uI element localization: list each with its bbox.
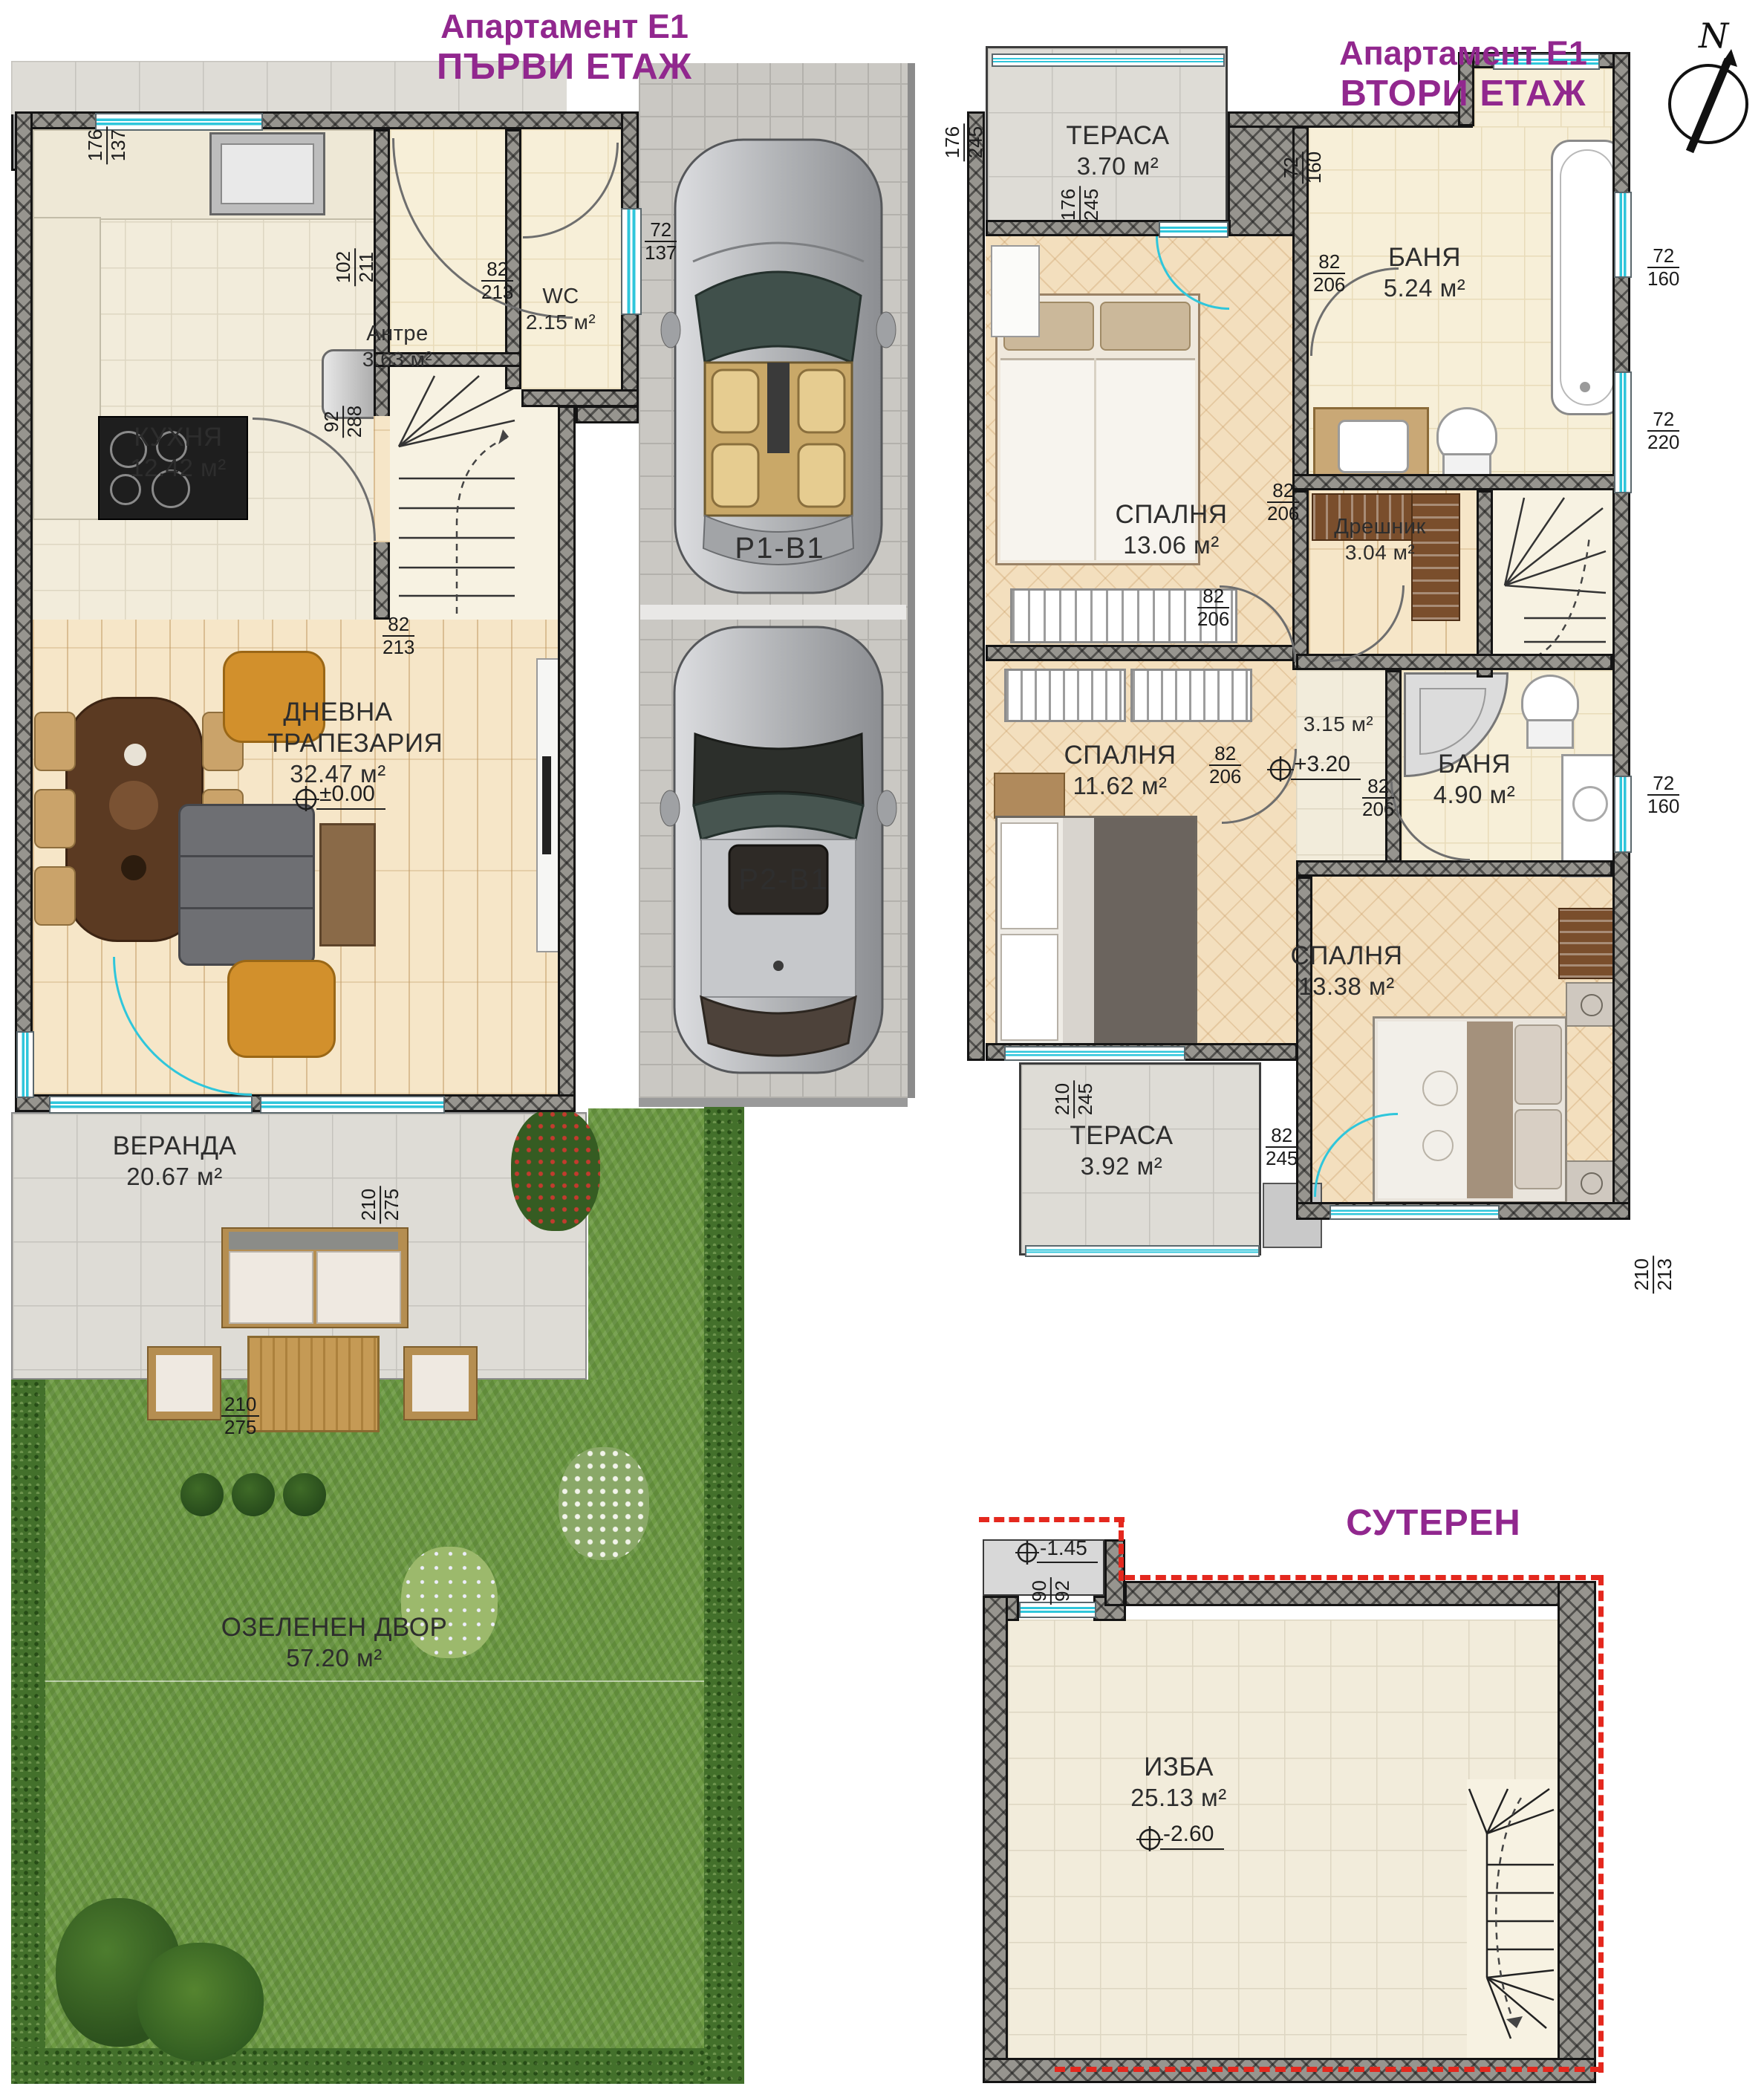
window	[1614, 371, 1632, 493]
window	[1025, 1245, 1260, 1257]
room-label-living: ДНЕВНА ТРАПЕЗАРИЯ 32.47 м²	[267, 697, 409, 789]
dimension: 176245	[1058, 186, 1101, 224]
room-label-terrace1: ТЕРАСА 3.70 м²	[1055, 120, 1181, 181]
flower-bush-icon	[559, 1447, 649, 1560]
wall	[1296, 877, 1312, 1218]
dimension: 72220	[1647, 409, 1679, 452]
dimension: 92288	[321, 406, 365, 438]
second-floor-title: Апартамент E1 ВТОРИ ЕТАЖ	[1285, 34, 1641, 114]
insulation-line	[1055, 2067, 1601, 2072]
wall	[1296, 860, 1612, 877]
bush-icon	[232, 1473, 275, 1516]
nightstand-icon	[1566, 1160, 1615, 1205]
stairs-icon	[1494, 492, 1610, 670]
bush-icon	[180, 1473, 224, 1516]
room-label-cellar: ИЗБА 25.13 м²	[1104, 1752, 1253, 1813]
first-floor-title: Апартамент E1 ПЪРВИ ЕТАЖ	[319, 7, 810, 88]
dimension: 82213	[481, 259, 513, 302]
wall	[15, 111, 33, 1112]
window	[260, 1096, 445, 1114]
room-label-bedroom1: СПАЛНЯ 13.06 м²	[1108, 499, 1234, 560]
stairs-icon	[1462, 1783, 1560, 2044]
hedge	[11, 1380, 45, 2084]
tree-icon	[137, 1943, 264, 2062]
level-marker: -1.45	[1013, 1536, 1098, 1565]
dimension: 82206	[1313, 251, 1345, 295]
stairs-icon	[391, 368, 521, 618]
dimension: 72160	[1647, 773, 1679, 816]
wardrobe-icon	[1130, 669, 1252, 722]
room-label-entry: Антре 3.63 м²	[338, 321, 457, 371]
level-marker: -2.60	[1135, 1822, 1224, 1851]
parking-divider	[640, 605, 906, 620]
chair-icon	[34, 866, 76, 926]
dimension: 176137	[85, 126, 128, 164]
lawn	[588, 1108, 706, 1382]
vanity-icon	[1561, 754, 1616, 877]
dimension: 210213	[1631, 1256, 1675, 1293]
car-p1-icon	[663, 135, 894, 597]
dimension: 210275	[221, 1394, 259, 1438]
window	[1614, 192, 1632, 278]
nightstand-icon	[994, 773, 1065, 819]
room-label-veranda: ВЕРАНДА 20.67 м²	[78, 1131, 271, 1192]
basement-title: СУТЕРЕН	[1329, 1502, 1537, 1544]
sofa-icon	[178, 804, 315, 966]
wardrobe-icon	[1004, 669, 1126, 722]
room-label-corridor: 3.15 м²	[1294, 712, 1383, 737]
window	[1004, 1046, 1185, 1061]
parking-spot-p2-label: P2-B1	[687, 863, 880, 897]
chair-icon	[34, 789, 76, 848]
room-label-kitchen: КУХНЯ 12.42 м²	[115, 422, 241, 483]
toilet-icon	[1432, 407, 1497, 481]
floor-plan-sheet: Апартамент E1 ПЪРВИ ЕТАЖ	[0, 0, 1764, 2095]
room-label-terrace2: ТЕРАСА 3.92 м²	[1058, 1120, 1185, 1181]
door-opening	[374, 416, 390, 542]
svg-text:N: N	[1698, 16, 1730, 56]
window	[1159, 221, 1228, 238]
wall	[983, 1596, 1008, 2083]
room-label-bath2: БАНЯ 4.90 м²	[1415, 749, 1534, 810]
room-label-bedroom2: СПАЛНЯ 11.62 м²	[1061, 740, 1179, 801]
dimension: 82206	[1267, 480, 1299, 524]
lawn-joint	[11, 1680, 744, 1682]
wall	[576, 406, 639, 423]
window	[1329, 1205, 1500, 1220]
room-label-wc: WC 2.15 м²	[512, 284, 609, 334]
kitchen-counter-icon	[33, 217, 101, 520]
window	[621, 208, 642, 315]
wall	[558, 406, 576, 1112]
bush-icon	[283, 1473, 326, 1516]
wall	[967, 111, 985, 1061]
coffee-table-icon	[319, 823, 376, 946]
dimension: 210275	[358, 1186, 402, 1224]
wall	[1477, 490, 1493, 678]
car-p2-icon	[661, 623, 896, 1077]
insulation-line	[979, 1517, 1125, 1522]
toilet-icon	[1517, 675, 1580, 749]
insulation-line	[1125, 1575, 1601, 1580]
wall	[1558, 1581, 1596, 2083]
dimension: 82206	[1209, 743, 1241, 787]
dimension: 72137	[645, 219, 677, 263]
dimension: 176245	[942, 123, 986, 161]
room-label-yard: ОЗЕЛЕНЕН ДВОР 57.20 м²	[171, 1612, 498, 1673]
dimension: 72160	[1280, 152, 1324, 183]
window	[49, 1096, 253, 1114]
level-marker: ±0.00	[291, 782, 385, 811]
dimension: 82213	[383, 614, 414, 657]
flower-bush-icon	[511, 1108, 600, 1231]
outdoor-sofa-icon	[221, 1227, 409, 1328]
wall	[521, 389, 639, 407]
room-label-bath1: БАНЯ 5.24 м²	[1365, 242, 1484, 303]
window	[16, 1031, 34, 1098]
bed-icon	[995, 816, 1197, 1052]
room-label-dresser: Дрешник 3.04 м²	[1328, 514, 1432, 565]
insulation-line	[1119, 1517, 1124, 1581]
dimension: 82206	[1197, 585, 1229, 629]
hedge	[11, 2048, 744, 2084]
sink-icon	[209, 132, 325, 215]
bed-icon	[1373, 1016, 1567, 1204]
parking-edge	[639, 1098, 908, 1107]
wardrobe-icon	[1558, 908, 1616, 979]
wall	[1292, 474, 1629, 490]
dimension: 82206	[1362, 776, 1394, 819]
hedge	[704, 1107, 744, 2084]
wall	[374, 129, 390, 620]
parking-spot-p1-label: P1-B1	[683, 532, 876, 565]
dimension: 72160	[1647, 245, 1679, 289]
chair-icon	[34, 712, 76, 771]
tv-cabinet-icon	[536, 658, 560, 952]
compass-icon: N	[1660, 13, 1757, 158]
outdoor-table-icon	[247, 1336, 380, 1432]
room-label-bedroom3: СПАЛНЯ 13.38 м²	[1283, 941, 1410, 1001]
outdoor-chair-icon	[403, 1346, 478, 1420]
nightstand-icon	[1566, 982, 1615, 1027]
level-marker: +3.20	[1266, 752, 1361, 782]
outdoor-chair-icon	[147, 1346, 221, 1420]
window	[1614, 776, 1632, 853]
window	[992, 53, 1225, 67]
dimension: 82245	[1266, 1125, 1298, 1169]
fence	[908, 63, 915, 1098]
dimension: 102211	[333, 248, 377, 286]
wall	[1385, 670, 1402, 877]
insulation-line	[1598, 1575, 1604, 2073]
dresser-table-icon	[991, 245, 1040, 337]
dimension: 9092	[1029, 1577, 1073, 1605]
wall	[1125, 1581, 1561, 1606]
dimension: 210245	[1052, 1080, 1096, 1118]
